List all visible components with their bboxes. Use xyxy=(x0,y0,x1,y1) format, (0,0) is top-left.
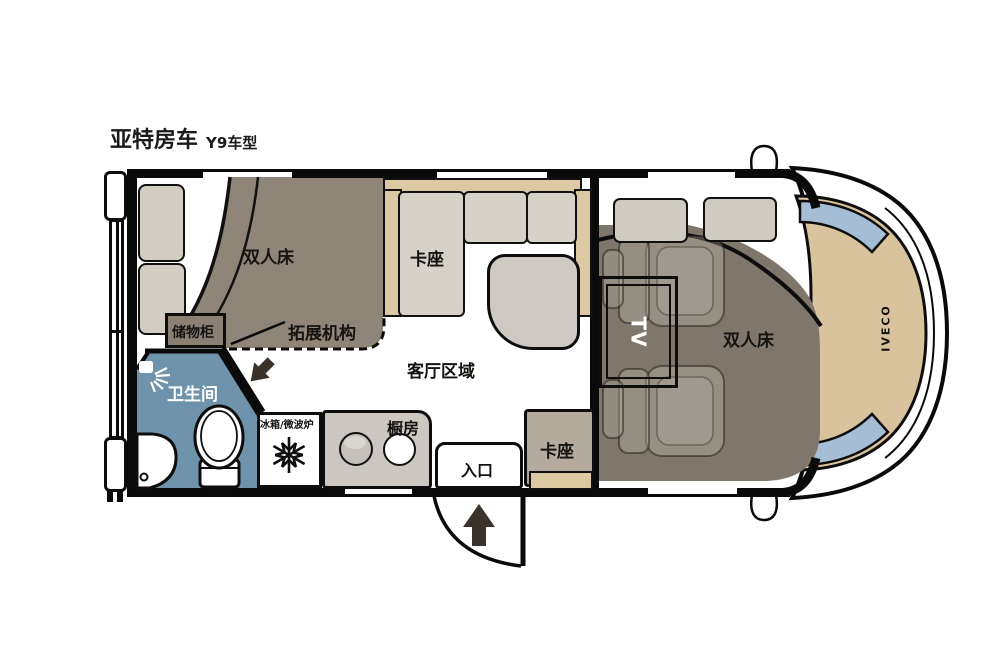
chassis-brand-label: IVECO xyxy=(880,304,893,352)
dinette-main-label: 卡座 xyxy=(410,245,444,270)
shower-drain xyxy=(141,474,148,481)
expansion-pointer-line xyxy=(231,322,285,344)
snowflake-icon xyxy=(270,437,308,473)
living-area-label: 客厅区域 xyxy=(407,357,475,382)
page-title: 亚特房车 Y9车型 xyxy=(110,122,257,154)
floorplan-over-layer xyxy=(0,0,1000,666)
expansion-label: 拓展机构 xyxy=(288,319,356,344)
title-model: Y9车型 xyxy=(206,132,257,154)
arrow-down-left-icon xyxy=(243,353,279,389)
arrow-up-icon xyxy=(463,504,495,546)
fridge-microwave-label: 冰箱/微波炉 xyxy=(260,416,314,431)
rear-bed-label: 双人床 xyxy=(243,243,294,268)
title-brand: 亚特房车 xyxy=(110,122,198,154)
kitchen-label: 橱房 xyxy=(387,415,419,439)
storage-label: 储物柜 xyxy=(172,322,214,342)
shower-head-icon xyxy=(139,361,170,392)
floorplan-canvas: TV xyxy=(0,0,1000,666)
shower-tray xyxy=(137,434,176,488)
toilet xyxy=(195,406,243,487)
cab-bed-label: 双人床 xyxy=(723,326,774,351)
entrance-label: 入口 xyxy=(461,457,493,481)
bathroom-label: 卫生间 xyxy=(167,380,218,405)
entry-dinette-label: 卡座 xyxy=(540,437,574,462)
